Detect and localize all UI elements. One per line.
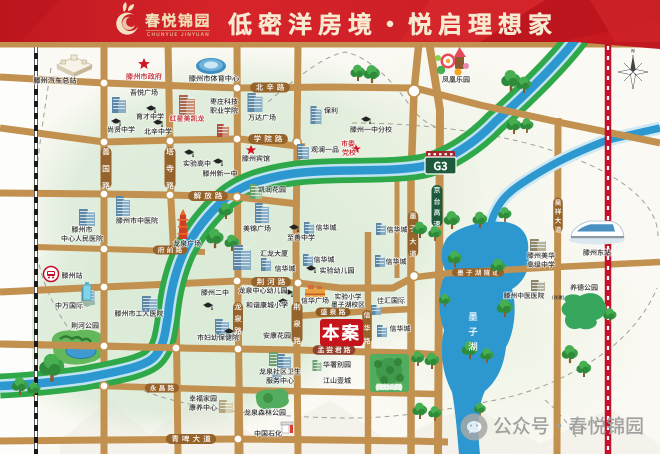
svg-text:龙泉中心幼儿园: 龙泉中心幼儿园 [239, 286, 288, 296]
svg-text:北辛路: 北辛路 [256, 82, 288, 93]
svg-text:市妇幼保健院: 市妇幼保健院 [197, 333, 239, 343]
svg-text:盛泉路: 盛泉路 [321, 308, 348, 318]
svg-text:泉: 泉 [293, 319, 301, 330]
svg-text:大: 大 [409, 237, 416, 247]
svg-text:荆: 荆 [293, 302, 301, 313]
svg-text:观澜一品: 观澜一品 [311, 145, 339, 155]
svg-text:中万国际: 中万国际 [55, 301, 83, 311]
svg-text:信华城: 信华城 [387, 225, 408, 235]
svg-text:滕州市政府: 滕州市政府 [126, 72, 162, 82]
svg-text:墨: 墨 [409, 212, 416, 222]
svg-text:职业学院: 职业学院 [210, 106, 238, 116]
svg-text:实验高中: 实验高中 [183, 159, 211, 169]
svg-text:红星美凯龙: 红星美凯龙 [170, 114, 205, 124]
svg-text:信华城: 信华城 [314, 255, 335, 265]
svg-text:京: 京 [434, 186, 441, 196]
svg-text:和谐康城小学: 和谐康城小学 [246, 301, 288, 311]
svg-text:滕州宾馆: 滕州宾馆 [242, 154, 270, 164]
svg-text:国: 国 [102, 164, 110, 175]
svg-text:子: 子 [468, 324, 478, 338]
svg-text:滕州东站: 滕州东站 [583, 248, 611, 258]
svg-text:滕州市体育中心: 滕州市体育中心 [189, 74, 239, 84]
svg-text:信华广场: 信华广场 [301, 296, 329, 306]
svg-text:滕州汽车总站: 滕州汽车总站 [33, 76, 76, 86]
svg-text:高: 高 [434, 208, 441, 218]
svg-text:万达广场: 万达广场 [248, 113, 276, 123]
svg-text:华署别园: 华署别园 [323, 360, 351, 370]
svg-text:低密洋房境·悦启理想家: 低密洋房境·悦启理想家 [227, 5, 558, 40]
svg-text:春悦锦园: 春悦锦园 [144, 10, 211, 31]
svg-text:美锦广场: 美锦广场 [243, 224, 271, 234]
svg-text:解放路: 解放路 [194, 191, 226, 202]
svg-text:服务中心: 服务中心 [266, 376, 294, 386]
svg-text:永昌路: 永昌路 [150, 382, 176, 392]
svg-text:孟尝君路: 孟尝君路 [317, 346, 352, 356]
svg-text:吾悦广场: 吾悦广场 [130, 88, 158, 98]
svg-text:滕州中医医院: 滕州中医医院 [504, 290, 545, 300]
svg-text:公众号·春悦锦园: 公众号·春悦锦园 [493, 410, 644, 439]
svg-text:滕州市中医院: 滕州市中医院 [116, 216, 158, 226]
svg-text:N: N [631, 48, 635, 55]
svg-text:中国石化: 中国石化 [254, 429, 282, 439]
svg-text:路: 路 [293, 336, 301, 347]
svg-text:信华城: 信华城 [386, 257, 407, 267]
svg-text:养德公园: 养德公园 [570, 283, 598, 293]
svg-text:台: 台 [434, 197, 441, 207]
svg-text:滕州市工人医院: 滕州市工人医院 [115, 309, 164, 319]
svg-text:(在建): (在建) [552, 295, 565, 301]
svg-text:育才中学: 育才中学 [136, 112, 164, 122]
svg-text:信华城: 信华城 [275, 264, 296, 274]
svg-text:至善中学: 至善中学 [287, 233, 315, 243]
svg-text:路: 路 [166, 181, 174, 192]
svg-text:学院路: 学院路 [254, 134, 286, 145]
svg-text:安康花园: 安康花园 [263, 331, 291, 341]
svg-text:湖: 湖 [468, 339, 478, 353]
svg-text:(规划公园): (规划公园) [376, 383, 402, 391]
svg-text:G3: G3 [434, 158, 448, 174]
svg-text:保利: 保利 [324, 106, 338, 116]
svg-text:中心人民医院: 中心人民医院 [61, 234, 103, 244]
svg-text:泉: 泉 [234, 314, 242, 325]
svg-text:凤凰乐园: 凤凰乐园 [442, 75, 470, 85]
svg-text:墨: 墨 [468, 309, 478, 323]
svg-text:凯润花园: 凯润花园 [258, 185, 286, 195]
svg-text:龙: 龙 [234, 302, 242, 313]
svg-text:青啤大道: 青啤大道 [171, 434, 213, 445]
svg-text:龙泉广场: 龙泉广场 [173, 239, 201, 249]
svg-text:尚贤中学: 尚贤中学 [107, 125, 135, 135]
svg-text:党校: 党校 [342, 148, 356, 158]
svg-text:北辛中学: 北辛中学 [144, 127, 172, 137]
svg-text:龙泉森林公园: 龙泉森林公园 [244, 408, 286, 418]
svg-text:华: 华 [364, 324, 371, 334]
svg-text:滕州一中分校: 滕州一中分校 [350, 125, 392, 135]
svg-text:荆河公园: 荆河公园 [71, 321, 99, 331]
svg-text:汇龙大厦: 汇龙大厦 [260, 249, 288, 259]
svg-text:江山壹城: 江山壹城 [323, 376, 351, 386]
svg-text:信华城: 信华城 [316, 223, 337, 233]
svg-text:寺: 寺 [166, 164, 174, 175]
svg-text:高级中学: 高级中学 [527, 260, 555, 270]
svg-text:道: 道 [409, 250, 416, 260]
svg-text:佳汇国际: 佳汇国际 [377, 296, 405, 306]
svg-text:善: 善 [102, 147, 110, 158]
svg-text:信: 信 [364, 311, 371, 321]
svg-text:道: 道 [555, 224, 562, 234]
svg-text:实验幼儿园: 实验幼儿园 [320, 266, 355, 276]
svg-text:路: 路 [364, 337, 371, 347]
svg-text:滕州新一中: 滕州新一中 [203, 169, 238, 179]
svg-text:本案: 本案 [321, 320, 361, 345]
svg-text:信华城: 信华城 [390, 324, 411, 334]
svg-text:滕州二中: 滕州二中 [201, 288, 229, 298]
svg-text:康养中心: 康养中心 [189, 403, 217, 413]
svg-text:滕州站: 滕州站 [62, 271, 83, 281]
svg-text:塔: 塔 [166, 147, 174, 158]
svg-text:CHUNYUE JINYUAN: CHUNYUE JINYUAN [147, 31, 210, 38]
svg-text:墨子湖校区: 墨子湖校区 [331, 299, 365, 309]
svg-text:路: 路 [102, 181, 110, 192]
